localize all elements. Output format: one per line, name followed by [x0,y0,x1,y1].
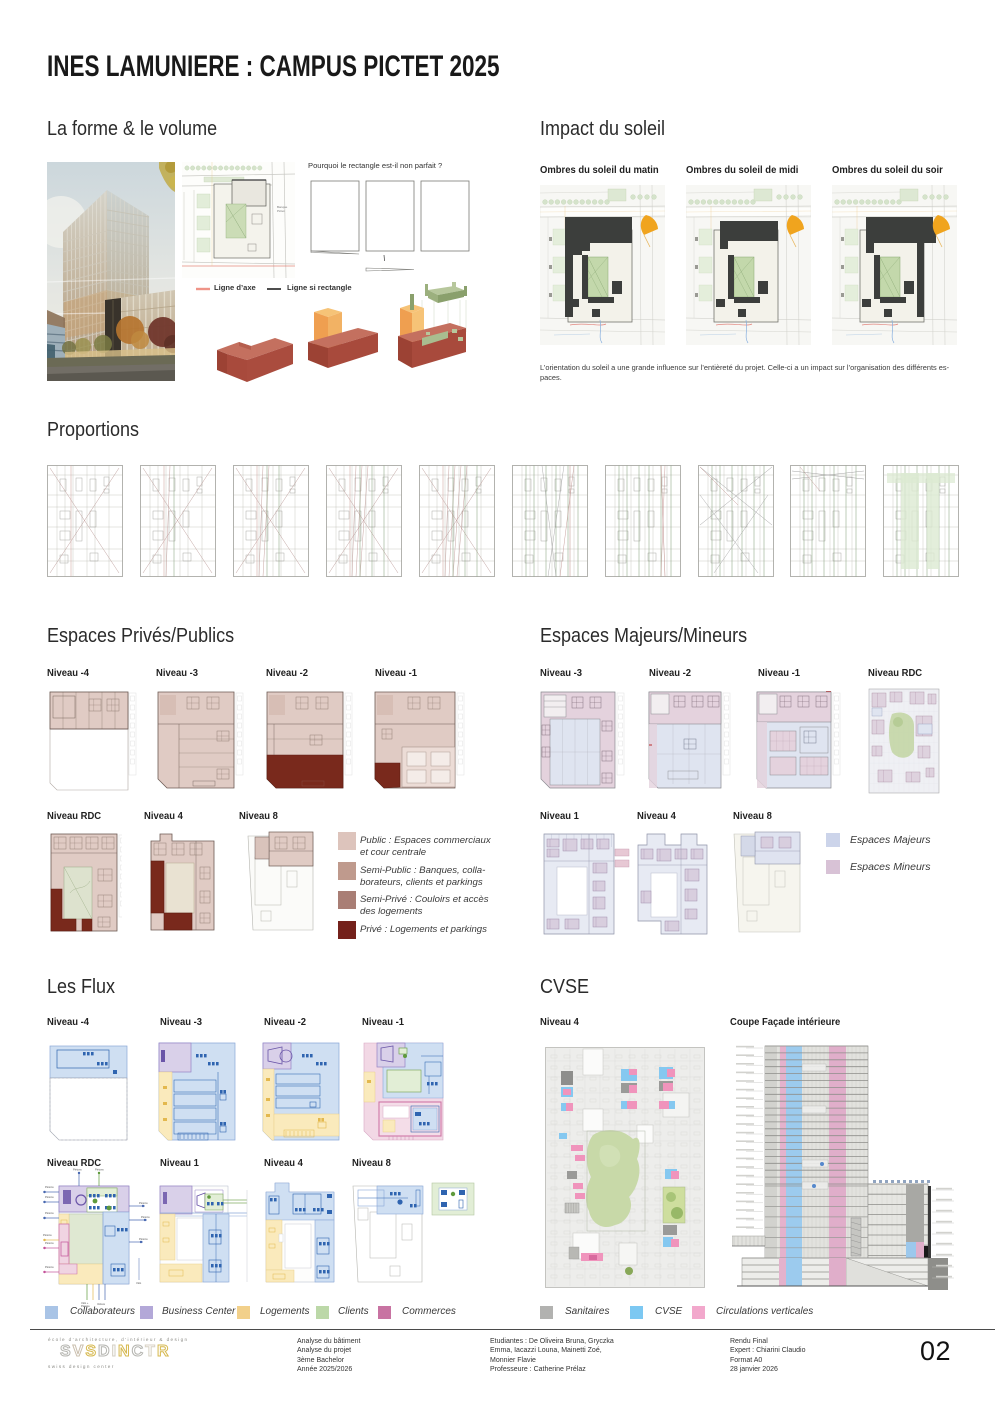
svg-text:Piétons: Piétons [43,1233,52,1237]
svg-text:Piétons: Piétons [45,1241,54,1245]
svg-text:Piétons: Piétons [45,1211,54,1215]
svg-text:Vélo: Vélo [136,1281,142,1285]
svg-text:Piétons: Piétons [141,1215,150,1219]
svg-text:Piétons: Piétons [45,1265,54,1269]
svg-text:Piétons: Piétons [95,1168,104,1172]
svg-text:Piétons: Piétons [139,1237,148,1241]
svg-text:Piétons: Piétons [45,1185,54,1189]
svg-text:Piétons: Piétons [45,1195,54,1199]
svg-text:Pictet: Pictet [277,209,285,213]
svg-text:Piétons: Piétons [73,1168,82,1172]
svg-text:Piétons: Piétons [139,1201,148,1205]
